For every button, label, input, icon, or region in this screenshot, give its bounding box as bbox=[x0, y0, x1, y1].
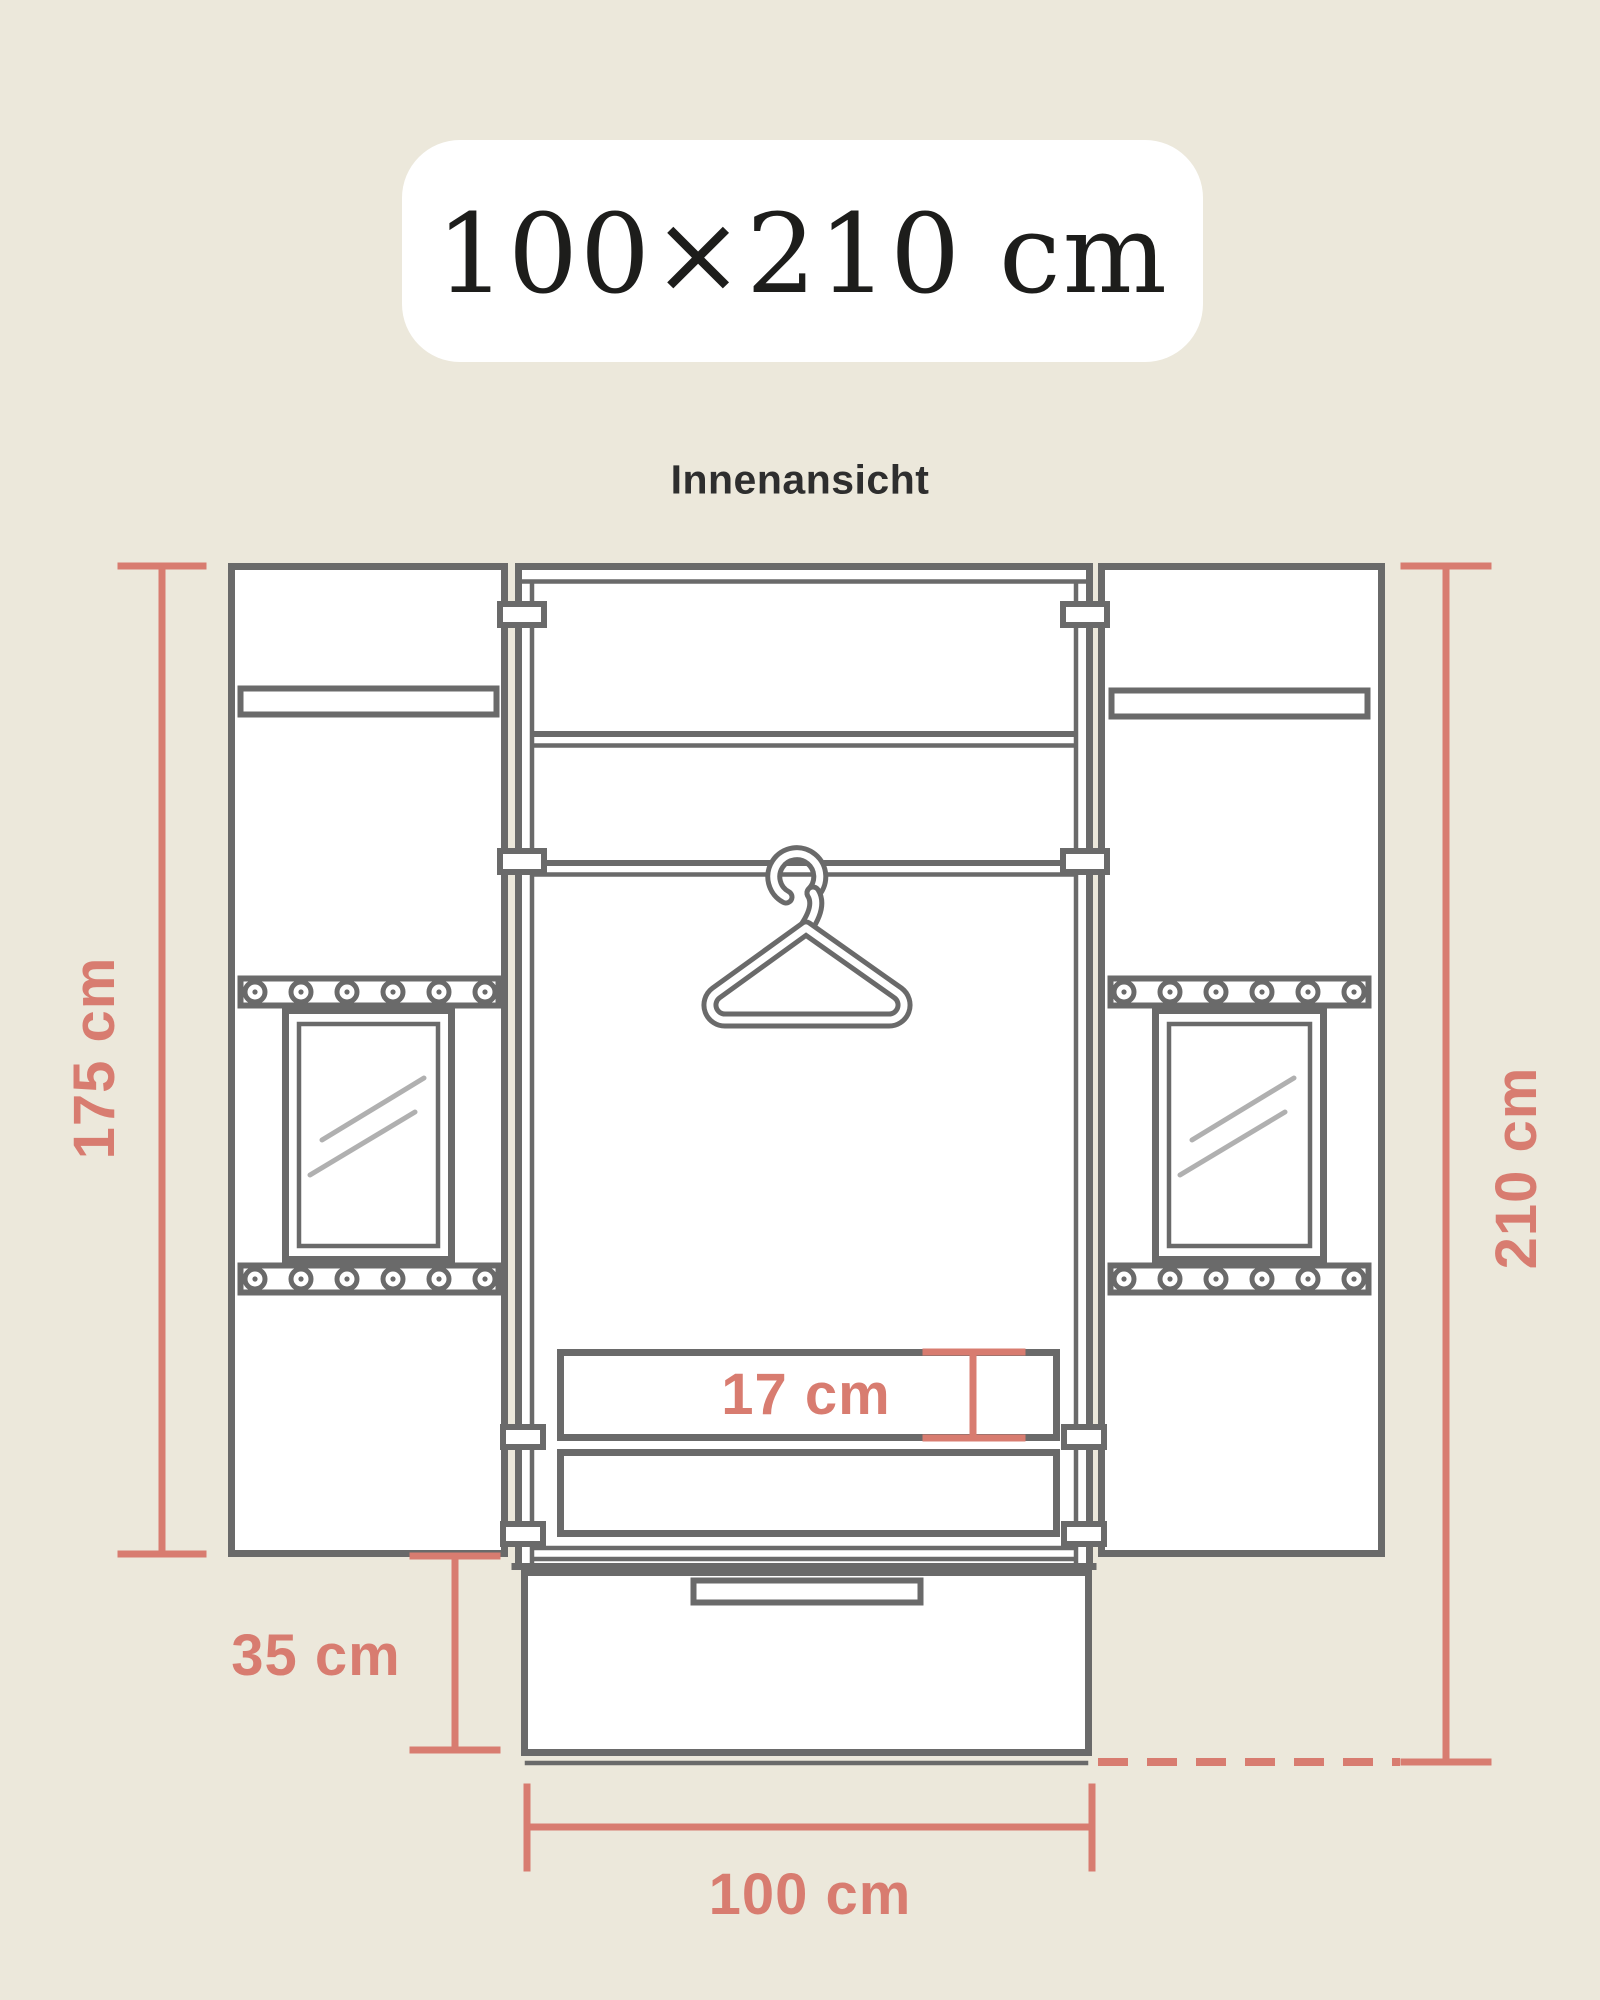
dim-label-total-width: 100 cm bbox=[709, 1866, 912, 1924]
left-window bbox=[286, 1011, 452, 1260]
drawer-handle-slot bbox=[694, 1581, 921, 1603]
bottom-drawer bbox=[525, 1573, 1089, 1764]
dim-line-door-height bbox=[121, 566, 203, 1554]
dim-line-total-width bbox=[527, 1787, 1092, 1868]
right-door bbox=[1102, 567, 1382, 1554]
dim-label-door-height: 175 cm bbox=[66, 957, 124, 1160]
right-window-bottom-rivet-strip bbox=[1111, 1266, 1369, 1293]
shelf-box-lower bbox=[561, 1453, 1057, 1534]
left-door bbox=[232, 567, 505, 1554]
left-door-slot bbox=[241, 689, 497, 715]
dim-label-shelf-clearance: 17 cm bbox=[721, 1366, 890, 1424]
dim-label-base-height: 35 cm bbox=[231, 1627, 400, 1685]
dim-line-base-height bbox=[413, 1556, 497, 1750]
left-window-top-rivet-strip bbox=[241, 979, 499, 1006]
right-window-top-rivet-strip bbox=[1111, 979, 1369, 1006]
infographic-page: 100×210 cm Innenansicht bbox=[0, 0, 1600, 2000]
right-door-slot bbox=[1112, 691, 1368, 717]
wardrobe-diagram bbox=[0, 0, 1600, 2000]
right-window bbox=[1156, 1011, 1324, 1260]
dim-label-total-height: 210 cm bbox=[1488, 1067, 1546, 1270]
left-window-bottom-rivet-strip bbox=[241, 1266, 499, 1293]
